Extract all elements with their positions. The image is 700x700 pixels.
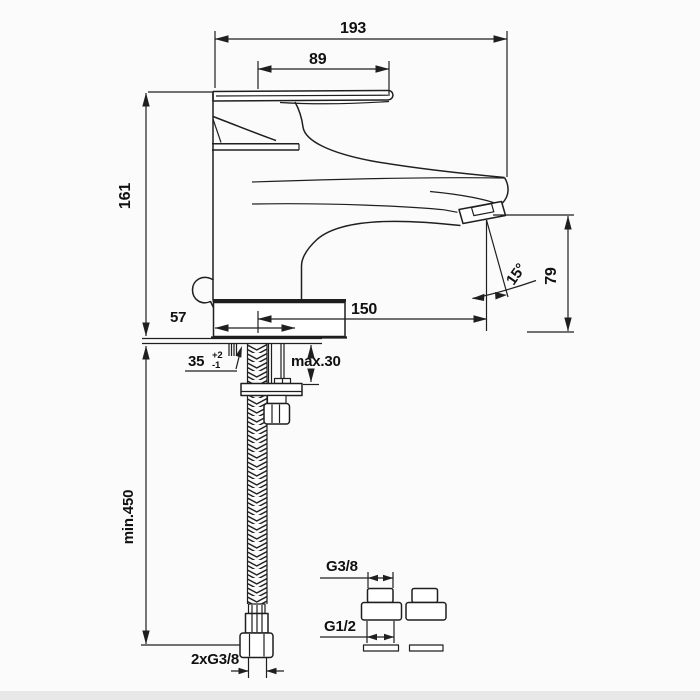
label-deck-thickness: 35 [188, 353, 204, 370]
mounting-nut [264, 396, 290, 425]
aerator [459, 202, 506, 224]
page-edge-artifact [0, 691, 700, 700]
washer [410, 645, 444, 651]
faucet-technical-drawing: 193 89 161 150 57 15° 79 35 +2 -1 max.30… [0, 0, 700, 700]
label-spout-reach: 150 [351, 301, 377, 318]
hose-end-ferrule [246, 604, 269, 633]
pop-up-knob [193, 277, 215, 308]
threaded-shank [269, 344, 285, 383]
label-overall-height: 161 [117, 183, 134, 209]
below-deck-assembly [229, 344, 302, 658]
washer [364, 645, 399, 651]
label-total-width: 193 [340, 20, 366, 37]
faucet-dimension-drawing-page: 193 89 161 150 57 15° 79 35 +2 -1 max.30… [0, 0, 700, 700]
label-hose-length: min.450 [120, 490, 137, 544]
dim-hose-length [141, 346, 240, 645]
deck-surface [142, 339, 322, 344]
label-adapter-top-thread: G3/8 [326, 558, 358, 575]
hose-end-nut [240, 633, 273, 658]
label-base-depth: 57 [170, 309, 186, 326]
dim-outlet-height [493, 215, 574, 332]
pop-up-rod [229, 344, 237, 356]
label-deck-tol-minus: -1 [212, 360, 221, 371]
adapter-fitting-right [406, 589, 446, 652]
dimension-lines [141, 31, 574, 678]
label-outlet-height: 79 [543, 267, 560, 285]
dim-overall-height [146, 92, 212, 336]
label-hose-thread: 2xG3/8 [191, 651, 239, 668]
label-handle-length: 89 [309, 51, 327, 68]
dim-total-width [215, 31, 507, 177]
label-adapter-bottom-thread: G1/2 [324, 618, 356, 635]
label-deck-max: max.30 [291, 353, 341, 370]
